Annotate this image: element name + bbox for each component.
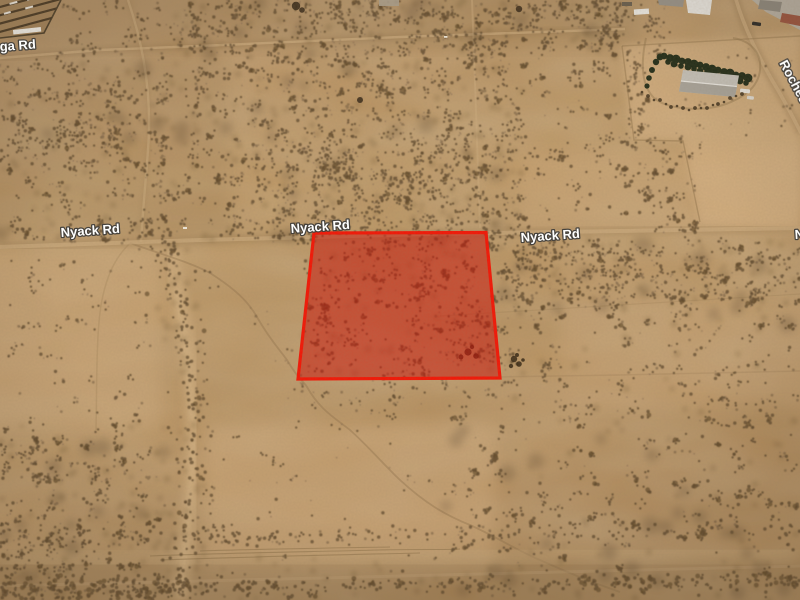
svg-text:ga Rd: ga Rd [0, 37, 36, 54]
